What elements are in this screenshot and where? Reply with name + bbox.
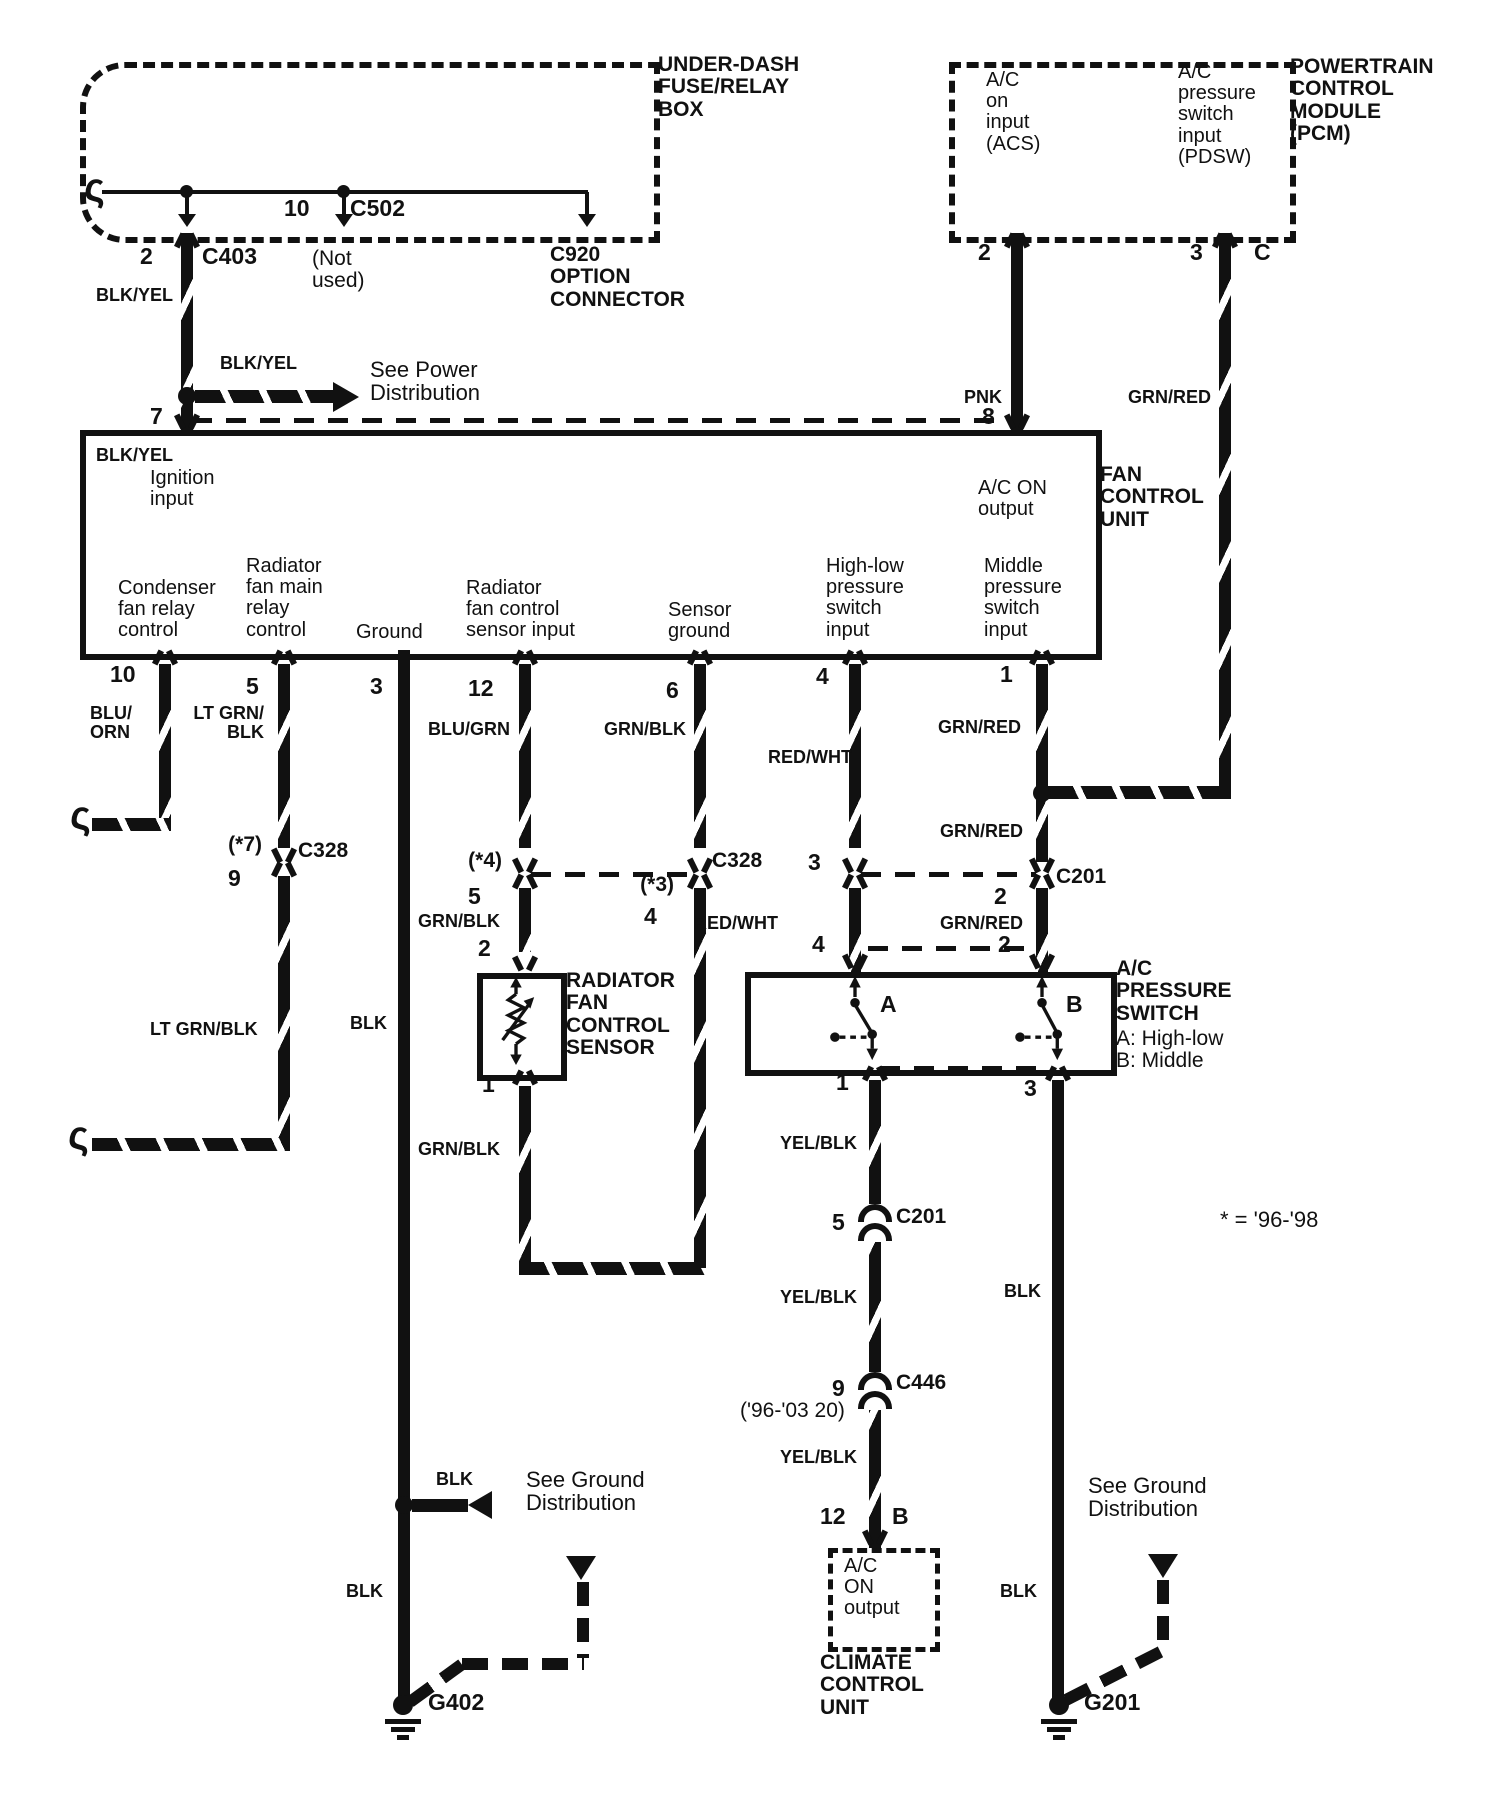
switch-b-label: B <box>1066 992 1083 1016</box>
switch-top-line <box>868 946 1036 951</box>
connector-c328: C328 <box>712 850 762 872</box>
c328-right-pin-left: 5 <box>468 884 481 908</box>
junction-dot <box>178 387 196 405</box>
connector-c201: C201 <box>896 1206 946 1228</box>
c201-pin-3: 3 <box>808 850 821 874</box>
y-connector <box>272 846 296 863</box>
wire-label: LT GRN/ BLK <box>186 704 264 742</box>
fcu-pin-4: 4 <box>816 664 829 688</box>
y-connector <box>513 1070 537 1087</box>
ground-line <box>1053 1735 1065 1740</box>
wire-blu-grn <box>519 664 531 848</box>
y-connector <box>688 856 712 873</box>
ground-line <box>385 1719 421 1724</box>
wire-label: YEL/BLK <box>780 1288 857 1307</box>
fcu-ground-label: Ground <box>356 622 423 643</box>
fcu-top-connector-line <box>192 418 1012 423</box>
c446-pin: 9 <box>832 1376 845 1400</box>
wire-lt-grn-blk-2 <box>278 876 290 1150</box>
fcu-condenser-label: Condenser fan relay control <box>118 578 216 642</box>
arrow-left-icon <box>468 1491 492 1519</box>
fcu-pin-7: 7 <box>150 404 163 428</box>
wire-label: BLK/YEL <box>96 286 173 305</box>
climate-pin-12: 12 <box>820 1504 846 1528</box>
fcu-rad-main-label: Radiator fan main relay control <box>246 556 323 641</box>
climate-pin-b: B <box>892 1504 909 1528</box>
incoming-ground-wire <box>462 1658 584 1670</box>
wire-grn-red-elbow <box>1048 786 1219 799</box>
wire-label: BLK <box>1000 1582 1037 1601</box>
wire-lt-grn-blk-elbow <box>92 1138 290 1151</box>
c328-left-star: (*7) <box>204 834 262 856</box>
wire-grn-blk-col6-down <box>694 888 706 1268</box>
c328-right-star-left: (*4) <box>444 850 502 872</box>
pcm-pin-2: 2 <box>978 240 991 264</box>
arrow-right-icon <box>333 382 359 412</box>
wire-blk-ground <box>398 650 410 1707</box>
see-ground-distribution-left: See Ground Distribution <box>526 1468 645 1515</box>
c201-bottom-pin: 5 <box>832 1210 845 1234</box>
ground-line <box>397 1735 409 1740</box>
y-connector <box>843 856 867 873</box>
wire-label: BLK <box>350 1014 387 1033</box>
ground-g201-label: G201 <box>1084 1690 1140 1714</box>
wire-lt-grn-blk <box>278 664 290 848</box>
switch-a-icon <box>825 976 885 1062</box>
fuse-pin-2: 2 <box>140 244 153 268</box>
y-connector <box>1005 412 1029 429</box>
wire-label: BLK <box>1004 1282 1041 1301</box>
connector-c446: C446 <box>896 1372 946 1394</box>
wire-label: BLK <box>436 1470 473 1489</box>
fuse-box-title: UNDER-DASH FUSE/RELAY BOX <box>658 54 799 121</box>
wire-grn-blk-down <box>519 1086 531 1262</box>
ac-switch-b-desc: B: Middle <box>1116 1050 1204 1072</box>
switch-pin-3: 3 <box>1024 1076 1037 1100</box>
wire-hook-icon: ς <box>70 796 91 836</box>
ground-line <box>1041 1719 1077 1724</box>
wire-label: GRN/RED <box>940 822 1023 841</box>
see-ground-distribution-right: See Ground Distribution <box>1088 1474 1207 1521</box>
arrow-down-icon <box>578 214 596 227</box>
y-connector <box>863 1528 887 1545</box>
fan-control-unit-box <box>80 430 1102 660</box>
pcm-acs-label: A/C on input (ACS) <box>986 70 1040 155</box>
wire-label: GRN/BLK <box>418 912 500 931</box>
fuse-pin-10: 10 <box>284 196 310 220</box>
wire-label: RED/WHT <box>768 748 852 767</box>
y-connector <box>175 412 199 429</box>
wire-sensor-loop-bottom <box>519 1262 706 1275</box>
footnote: * = '96-'98 <box>1220 1208 1318 1231</box>
c328-left-pin: 9 <box>228 866 241 890</box>
wire-grn-blk-col6 <box>694 664 706 848</box>
wire-label: BLK/YEL <box>220 354 297 373</box>
fcu-sensor-ground-label: Sensor ground <box>668 600 731 642</box>
fcu-ignition-input: Ignition input <box>150 468 215 510</box>
connector-c920: C920 OPTION CONNECTOR <box>550 244 685 311</box>
c201-top-line <box>861 872 1036 877</box>
incoming-ground-wire <box>1157 1580 1169 1652</box>
climate-output-label: A/C ON output <box>844 1556 900 1620</box>
fcu-pin-8: 8 <box>982 404 995 428</box>
junction-dot <box>1033 784 1051 802</box>
power-distribution-arrow <box>195 390 333 403</box>
wire-label: YEL/BLK <box>780 1448 857 1467</box>
wire-pnk <box>1011 233 1023 430</box>
fcu-pin-1: 1 <box>1000 662 1013 686</box>
junction-dot <box>180 185 193 198</box>
fcu-rad-sensor-label: Radiator fan control sensor input <box>466 578 575 642</box>
wire-hook-icon: ς <box>84 168 105 208</box>
y-connector <box>1030 856 1054 873</box>
wire-label: GRN/BLK <box>418 1140 500 1159</box>
fcu-pin-6: 6 <box>666 678 679 702</box>
sensor-title: RADIATOR FAN CONTROL SENSOR <box>566 970 675 1059</box>
ground-line <box>391 1727 415 1732</box>
wire-label: BLK <box>346 1582 383 1601</box>
sensor-pin-1: 1 <box>482 1072 495 1096</box>
connector-c201-icon <box>858 1204 892 1242</box>
fcu-title: FAN CONTROL UNIT <box>1100 464 1204 531</box>
switch-pin-4: 4 <box>812 932 825 956</box>
wire-grn-red <box>1036 664 1048 862</box>
wire-label: GRN/BLK <box>604 720 686 739</box>
wire-label: BLU/GRN <box>428 720 510 739</box>
variable-resistor-icon <box>486 977 546 1065</box>
incoming-ground-wire <box>577 1582 589 1658</box>
fcu-pin-5: 5 <box>246 674 259 698</box>
fcu-pin-12: 12 <box>468 676 494 700</box>
wire-label: RED/WHT <box>694 914 778 933</box>
pcm-pdsw-label: A/C pressure switch input (PDSW) <box>1178 62 1256 168</box>
wiring-diagram: ς UNDER-DASH FUSE/RELAY BOX 10 C502 2 C4… <box>0 0 1501 1801</box>
c328-right-pin-right: 4 <box>644 904 657 928</box>
switch-b-icon <box>1012 976 1072 1062</box>
fcu-pin-10: 10 <box>110 662 136 686</box>
wire-blu-orn <box>159 664 171 822</box>
y-connector <box>513 954 537 971</box>
ground-line <box>1047 1727 1071 1732</box>
wire-label: GRN/RED <box>1128 388 1211 407</box>
c201-pin-2: 2 <box>994 884 1007 908</box>
fcu-middle-label: Middle pressure switch input <box>984 556 1062 641</box>
wire-hook-icon: ς <box>68 1116 89 1156</box>
connector-c502: C502 <box>350 196 405 220</box>
y-connector <box>1030 952 1054 969</box>
wire-yel-blk <box>869 1080 881 1548</box>
y-connector <box>843 952 867 969</box>
connector-c446-icon <box>858 1372 892 1410</box>
switch-a-label: A <box>880 992 897 1016</box>
ground-distribution-stub <box>412 1499 468 1512</box>
wire-grn-blk <box>519 888 531 952</box>
c446-alt-pin: ('96-'03 20) <box>740 1400 845 1422</box>
junction-dot <box>337 185 350 198</box>
arrow-down-icon <box>178 214 196 227</box>
wire-label: GRN/RED <box>938 718 1021 737</box>
connector-c328: C328 <box>298 840 348 862</box>
arrow-down-icon <box>566 1556 596 1580</box>
switch-pin-1: 1 <box>836 1070 849 1094</box>
pcm-pin-3: 3 <box>1190 240 1203 264</box>
wire-blu-orn-elbow <box>92 818 171 831</box>
y-connector <box>513 856 537 873</box>
climate-title: CLIMATE CONTROL UNIT <box>820 1652 924 1719</box>
connector-c403: C403 <box>202 244 257 268</box>
switch-pin-2: 2 <box>998 932 1011 956</box>
fcu-high-low-label: High-low pressure switch input <box>826 556 904 641</box>
pcm-title: POWERTRAIN CONTROL MODULE (PCM) <box>1290 56 1434 145</box>
arrow-down-icon <box>1148 1554 1178 1578</box>
pcm-pin-c: C <box>1254 240 1271 264</box>
connector-c201: C201 <box>1056 866 1106 888</box>
wire-blk-right <box>1052 1080 1064 1710</box>
ac-switch-a-desc: A: High-low <box>1116 1028 1223 1050</box>
c328-right-star-right: (*3) <box>616 874 674 896</box>
wire-grn-red-pcm <box>1219 233 1231 799</box>
fcu-pin-3: 3 <box>370 674 383 698</box>
wire-label: BLU/ ORN <box>90 704 132 742</box>
not-used-label: (Not used) <box>312 248 365 293</box>
ac-switch-title: A/C PRESSURE SWITCH <box>1116 958 1232 1025</box>
sensor-pin-2: 2 <box>478 936 491 960</box>
ground-g402-label: G402 <box>428 1690 484 1714</box>
see-power-distribution: See Power Distribution <box>370 358 480 405</box>
wire-label: YEL/BLK <box>780 1134 857 1153</box>
fcu-ac-on-output: A/C ON output <box>978 478 1047 520</box>
junction-dot <box>395 1496 413 1514</box>
wire-label: LT GRN/BLK <box>150 1020 258 1039</box>
